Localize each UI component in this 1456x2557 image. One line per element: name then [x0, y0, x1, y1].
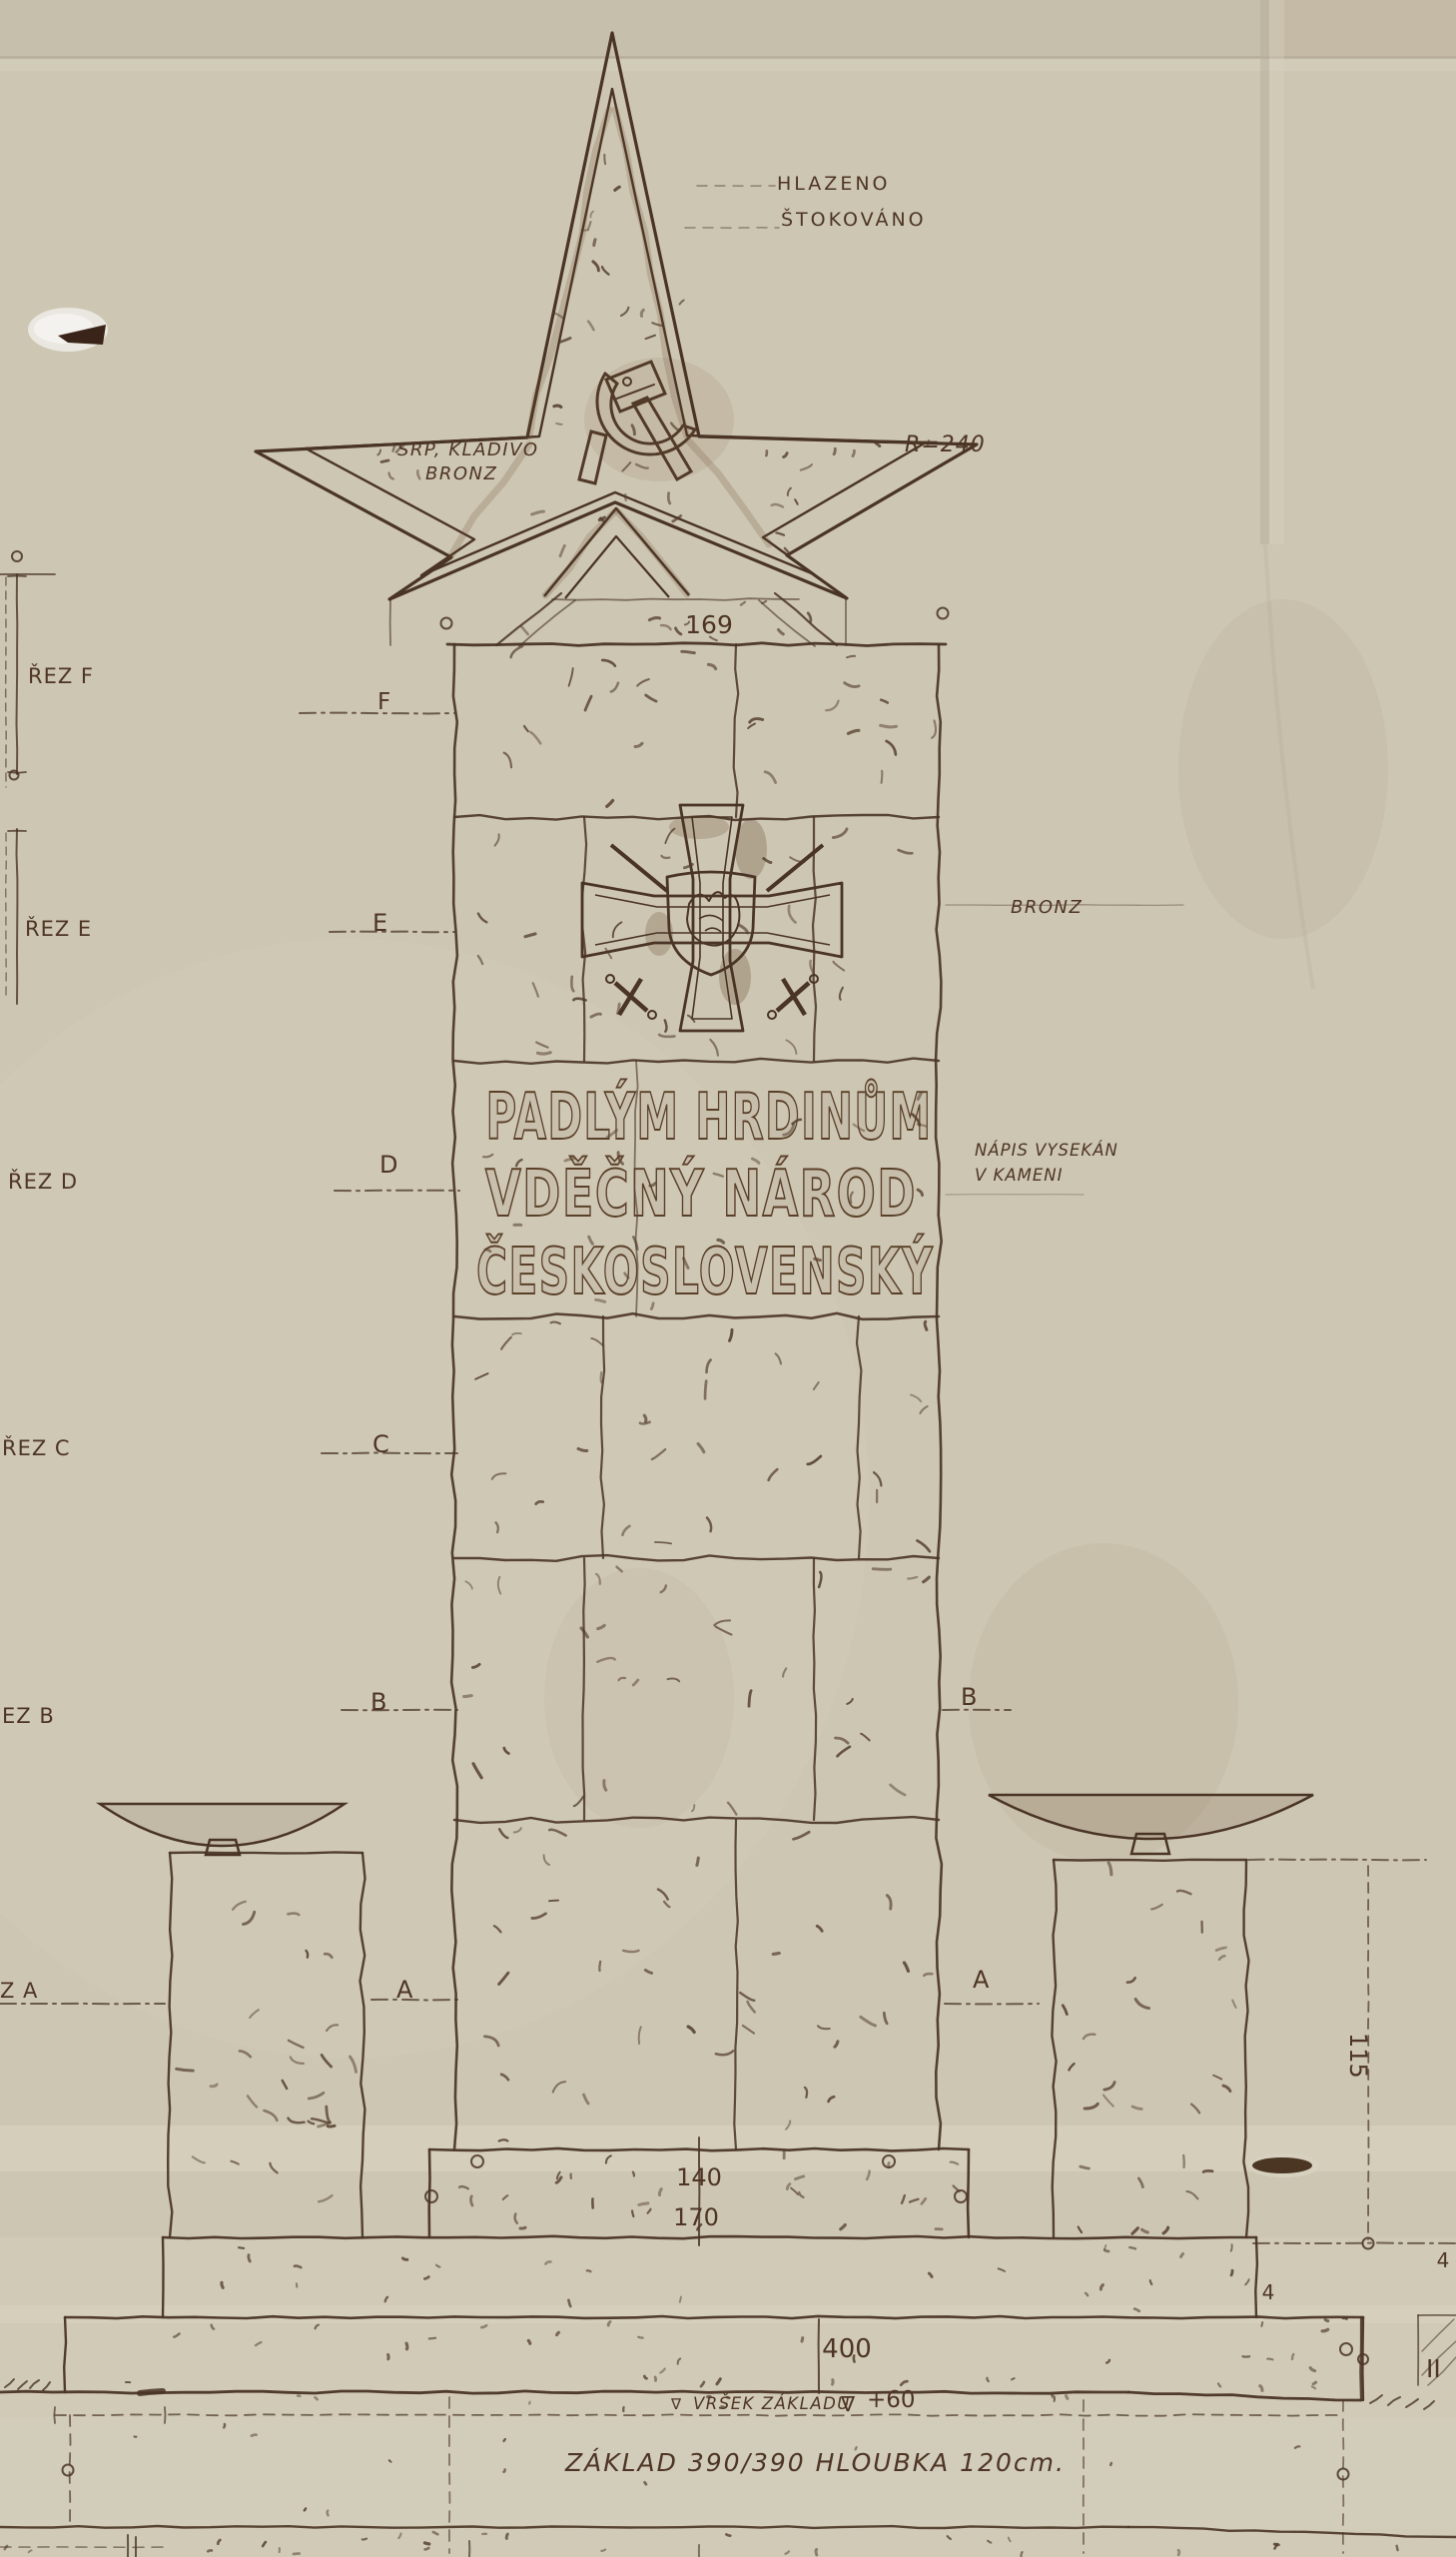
masonry-joint — [734, 644, 739, 817]
texture-stroke — [222, 2282, 223, 2287]
pier-top — [170, 1852, 363, 1853]
texture-stroke — [835, 2042, 838, 2047]
texture-stroke — [665, 829, 674, 844]
survey-circle — [441, 618, 452, 629]
star-shading — [451, 444, 529, 555]
section-line — [330, 932, 454, 933]
texture-stroke — [1322, 2329, 1328, 2331]
texture-stroke — [887, 1896, 891, 1910]
texture-stroke — [662, 856, 670, 858]
texture-stroke — [633, 2172, 634, 2176]
texture-stroke — [328, 2511, 329, 2516]
texture-stroke — [520, 2227, 525, 2228]
texture-stroke — [881, 700, 888, 703]
survey-circle — [425, 2190, 437, 2202]
texture-stroke — [847, 656, 855, 657]
texture-stroke — [538, 1053, 551, 1054]
texture-stroke — [252, 2435, 257, 2436]
texture-stroke — [920, 1406, 927, 1413]
texture-stroke — [240, 2051, 251, 2057]
texture-stroke — [1181, 2253, 1183, 2256]
texture-stroke — [611, 683, 618, 692]
texture-stroke — [889, 2162, 890, 2167]
texture-stroke — [697, 1858, 698, 1865]
texture-stroke — [741, 602, 745, 605]
texture-stroke — [1213, 2076, 1221, 2080]
texture-stroke — [1231, 2244, 1232, 2251]
texture-stroke — [588, 322, 593, 331]
material-note-line1: SRP, KLADIVO — [397, 439, 539, 460]
texture-stroke — [646, 695, 656, 701]
texture-stroke — [910, 2199, 919, 2202]
material-note-line2: BRONZ — [425, 463, 497, 484]
texture-stroke — [593, 262, 599, 271]
texture-stroke — [1063, 2006, 1067, 2015]
pier-edge — [1243, 1860, 1248, 2237]
texture-stroke — [381, 460, 388, 462]
texture-stroke — [841, 2225, 846, 2229]
texture-stroke — [726, 2534, 730, 2535]
texture-stroke — [716, 2051, 733, 2055]
texture-stroke — [1261, 2322, 1262, 2326]
texture-stroke — [571, 977, 573, 991]
tick — [8, 576, 26, 577]
texture-stroke — [805, 2088, 807, 2098]
texture-stroke — [560, 545, 564, 556]
texture-stroke — [924, 1974, 932, 1976]
margin-line — [17, 574, 18, 774]
texture-stroke — [1203, 2170, 1212, 2171]
texture-stroke — [530, 732, 540, 743]
section-line — [371, 2000, 457, 2001]
dim-140: 140 — [676, 2163, 722, 2191]
texture-stroke — [402, 2258, 407, 2259]
texture-stroke — [1343, 2318, 1346, 2319]
pedestal-slant — [519, 600, 575, 646]
texture-stroke — [743, 2026, 754, 2034]
star-shading — [545, 511, 615, 595]
texture-stroke — [289, 2119, 305, 2124]
texture-stroke — [283, 2081, 288, 2089]
texture-stroke — [738, 925, 747, 933]
texture-stroke — [908, 1577, 917, 1579]
texture-stroke — [1325, 2319, 1328, 2320]
texture-stroke — [1183, 2155, 1184, 2167]
dim-115: 115 — [1344, 2033, 1372, 2079]
texture-stroke — [556, 424, 561, 425]
texture-stroke — [649, 617, 659, 619]
texture-stroke — [918, 1190, 922, 1195]
texture-stroke — [829, 2097, 835, 2102]
texture-stroke — [902, 2195, 905, 2203]
texture-stroke — [834, 448, 835, 453]
texture-stroke — [504, 2439, 505, 2441]
texture-stroke — [599, 1962, 600, 1971]
texture-stroke — [560, 338, 570, 342]
texture-stroke — [748, 2002, 755, 2013]
plinth-edge — [968, 2149, 969, 2237]
texture-stroke — [406, 2343, 407, 2349]
texture-stroke — [208, 2550, 212, 2551]
texture-stroke — [1081, 2166, 1089, 2168]
section-marker-a-right: A — [973, 1966, 990, 1994]
texture-stroke — [789, 906, 796, 923]
survey-circle — [12, 551, 22, 561]
texture-stroke — [1104, 2083, 1114, 2091]
texture-stroke — [553, 2082, 566, 2092]
texture-stroke — [327, 2107, 331, 2123]
texture-stroke — [668, 493, 670, 503]
section-label-rez-f: ŘEZ F — [28, 663, 94, 688]
texture-stroke — [584, 2095, 589, 2104]
monument-elevation-drawing: HLAZENO ŠTOKOVÁNO SRP, KLADIVO BRONZ R=2… — [0, 0, 1456, 2557]
texture-stroke — [590, 212, 593, 218]
texture-stroke — [899, 850, 913, 853]
texture-stroke — [786, 1040, 796, 1054]
texture-stroke — [515, 2214, 517, 2223]
texture-stroke — [1022, 2552, 1023, 2557]
texture-stroke — [528, 2340, 530, 2343]
margin-line — [17, 829, 18, 1004]
texture-stroke — [1135, 2000, 1148, 2009]
radius-dimension: R=240 — [905, 432, 986, 457]
texture-stroke — [1132, 2107, 1141, 2109]
texture-stroke — [363, 2539, 366, 2540]
texture-stroke — [1219, 1956, 1224, 1960]
ground-level-symbol-1: ∇ — [670, 2395, 682, 2413]
texture-stroke — [602, 267, 609, 275]
texture-stroke — [840, 988, 843, 1000]
texture-stroke — [766, 450, 767, 455]
section-marker-d: D — [379, 1151, 397, 1179]
texture-stroke — [1127, 1978, 1135, 1982]
section-marker-b-right: B — [961, 1683, 977, 1711]
section-label-rez-a: Z A — [0, 1979, 38, 2003]
texture-stroke — [1055, 2399, 1056, 2401]
texture-stroke — [1292, 2354, 1293, 2359]
texture-stroke — [501, 2075, 508, 2080]
texture-stroke — [639, 2203, 648, 2205]
texture-stroke — [776, 533, 784, 535]
inscription-note-line1: NÁPIS VYSEKÁN — [975, 1141, 1118, 1160]
texture-stroke — [818, 2026, 830, 2029]
texture-stroke — [826, 701, 838, 711]
texture-stroke — [319, 2195, 332, 2201]
texture-stroke — [710, 1040, 718, 1056]
texture-stroke — [639, 2027, 641, 2044]
texture-stroke — [637, 679, 649, 686]
texture-stroke — [521, 626, 528, 634]
section-marker-c: C — [372, 1430, 389, 1458]
texture-stroke — [845, 683, 859, 687]
foundation-note: ZÁKLAD 390/390 HLOUBKA 120cm. — [564, 2448, 1066, 2477]
bronz-note: BRONZ — [1011, 897, 1083, 918]
texture-stroke — [787, 2184, 790, 2189]
texture-stroke — [799, 2192, 803, 2197]
texture-stroke — [478, 914, 486, 923]
texture-stroke — [762, 601, 766, 603]
texture-stroke — [784, 453, 788, 457]
texture-stroke — [638, 2337, 642, 2338]
texture-stroke — [925, 1321, 927, 1329]
texture-stroke — [954, 2186, 960, 2192]
texture-stroke — [1163, 2227, 1168, 2233]
texture-stroke — [594, 240, 595, 246]
texture-stroke — [1132, 2228, 1138, 2234]
ink-blot — [140, 2391, 163, 2393]
texture-stroke — [499, 2139, 508, 2140]
texture-stroke — [765, 772, 776, 783]
texture-stroke — [503, 2195, 508, 2199]
pier-top — [1054, 1860, 1246, 1861]
texture-stroke — [1084, 2035, 1095, 2039]
section-label-rez-e: ŘEZ E — [25, 916, 92, 941]
texture-stroke — [873, 1569, 891, 1570]
dim-4-right: 4 — [1437, 2248, 1450, 2272]
texture-stroke — [1232, 2000, 1235, 2008]
texture-stroke — [601, 1372, 602, 1382]
survey-circle — [938, 608, 949, 619]
texture-stroke — [211, 2085, 217, 2087]
detail-mark-ii: II — [1426, 2354, 1441, 2383]
texture-stroke — [1108, 1863, 1111, 1875]
texture-stroke — [659, 2189, 661, 2195]
pedestal-slant — [775, 593, 837, 645]
texture-stroke — [621, 308, 628, 316]
texture-stroke — [665, 1020, 667, 1031]
texture-stroke — [861, 1734, 870, 1741]
texture-stroke — [613, 922, 622, 937]
pier-edge — [1052, 1860, 1056, 2237]
texture-stroke — [849, 730, 859, 733]
texture-stroke — [817, 1926, 822, 1931]
texture-stroke — [876, 443, 880, 446]
margin-dashed — [6, 577, 7, 787]
texture-stroke — [676, 628, 681, 634]
texture-stroke — [623, 1951, 638, 1952]
texture-stroke — [425, 2548, 429, 2549]
foundation-level: +60 — [867, 2387, 916, 2413]
finish-note-line2: ŠTOKOVÁNO — [781, 207, 927, 231]
texture-stroke — [464, 1696, 472, 1697]
texture-stroke — [644, 1415, 646, 1421]
texture-stroke — [393, 446, 395, 451]
texture-stroke — [833, 2380, 834, 2385]
texture-stroke — [224, 2424, 225, 2427]
plinth-edge — [429, 2149, 430, 2237]
texture-stroke — [316, 2397, 318, 2399]
texture-stroke — [847, 1699, 853, 1704]
texture-stroke — [305, 2508, 306, 2510]
foundation-dashed — [449, 2397, 450, 2553]
texture-stroke — [918, 1540, 930, 1551]
texture-stroke — [177, 2069, 194, 2071]
texture-stroke — [924, 1577, 930, 1582]
texture-stroke — [932, 720, 936, 737]
texture-stroke — [788, 488, 791, 495]
texture-stroke — [1186, 2191, 1197, 2198]
texture-stroke — [635, 743, 642, 746]
section-marker-e: E — [372, 909, 387, 937]
texture-stroke — [470, 2196, 472, 2205]
survey-circle — [955, 2190, 967, 2202]
texture-stroke — [288, 1914, 299, 1915]
texture-stroke — [604, 155, 605, 164]
section-marker-b-left: B — [370, 1688, 386, 1716]
step-edge — [1360, 2317, 1361, 2400]
pedestal-slant — [759, 600, 815, 646]
texture-stroke — [1142, 2229, 1148, 2232]
texture-stroke — [661, 625, 670, 629]
texture-stroke — [1129, 2247, 1135, 2248]
texture-stroke — [891, 1785, 906, 1795]
texture-stroke — [309, 2093, 324, 2099]
texture-stroke — [659, 1035, 674, 1037]
texture-stroke — [264, 2111, 277, 2121]
texture-stroke — [495, 834, 499, 845]
section-marker-a-left: A — [396, 1976, 413, 2004]
texture-stroke — [750, 719, 763, 723]
shaft-edge — [936, 644, 942, 2149]
foundation-bottom — [0, 2526, 1128, 2528]
texture-stroke — [557, 2332, 559, 2334]
texture-stroke — [748, 724, 755, 729]
texture-stroke — [504, 2469, 505, 2472]
texture-stroke — [867, 2171, 870, 2179]
texture-stroke — [291, 2058, 304, 2064]
texture-stroke — [249, 2255, 250, 2261]
texture-stroke — [625, 494, 626, 500]
texture-stroke — [417, 470, 419, 478]
texture-stroke — [588, 222, 591, 229]
texture-stroke — [573, 999, 585, 1001]
texture-stroke — [884, 2013, 887, 2024]
texture-stroke — [429, 2338, 435, 2339]
texture-stroke — [459, 2186, 468, 2188]
texture-stroke — [1151, 1905, 1162, 1910]
texture-stroke — [607, 801, 613, 807]
texture-stroke — [680, 301, 684, 305]
texture-stroke — [377, 449, 380, 454]
texture-stroke — [794, 1832, 810, 1839]
texture-stroke — [549, 1901, 558, 1902]
texture-stroke — [861, 2017, 876, 2026]
dim-170: 170 — [673, 2203, 719, 2231]
texture-stroke — [1267, 2359, 1272, 2360]
step-edge — [163, 2237, 164, 2317]
texture-stroke — [795, 499, 798, 504]
texture-stroke — [1069, 2064, 1074, 2070]
texture-stroke — [802, 2338, 803, 2341]
texture-stroke — [309, 2122, 315, 2125]
texture-stroke — [646, 336, 656, 339]
margin-dashed — [6, 833, 7, 999]
texture-stroke — [506, 2534, 507, 2538]
section-label-rez-c: ŘEZ C — [2, 1435, 71, 1460]
pedestal-top — [552, 598, 799, 600]
texture-stroke — [1085, 2104, 1097, 2109]
texture-stroke — [424, 2543, 428, 2544]
texture-stroke — [1397, 2546, 1398, 2550]
section-label-rez-d: ŘEZ D — [8, 1169, 78, 1194]
texture-stroke — [511, 646, 523, 657]
texture-stroke — [833, 829, 847, 838]
texture-stroke — [773, 1953, 779, 1954]
texture-stroke — [1231, 2270, 1232, 2275]
texture-stroke — [836, 1738, 849, 1743]
texture-stroke — [239, 2247, 244, 2248]
texture-stroke — [602, 660, 615, 666]
texture-stroke — [389, 473, 393, 479]
step-edge — [1362, 2317, 1363, 2400]
tick — [165, 2407, 166, 2423]
texture-stroke — [1223, 2086, 1230, 2091]
texture-stroke — [708, 664, 715, 668]
texture-stroke — [645, 2482, 646, 2484]
texture-stroke — [587, 2270, 591, 2271]
texture-stroke — [1104, 2250, 1108, 2251]
texture-stroke — [484, 2037, 498, 2046]
texture-stroke — [680, 2297, 681, 2302]
ground-line — [0, 2391, 1128, 2393]
inscription-line3: ČESKOSLOVENSKÝ — [476, 1234, 934, 1309]
texture-stroke — [904, 1963, 908, 1971]
texture-stroke — [1313, 2382, 1316, 2384]
texture-stroke — [1216, 1948, 1225, 1951]
texture-stroke — [791, 2188, 798, 2195]
texture-stroke — [328, 2126, 335, 2127]
texture-stroke — [881, 725, 897, 727]
dim-169: 169 — [685, 610, 733, 639]
texture-stroke — [1012, 2378, 1015, 2379]
texture-stroke — [874, 1472, 881, 1485]
scanned-blueprint: HLAZENO ŠTOKOVÁNO SRP, KLADIVO BRONZ R=2… — [0, 0, 1456, 2557]
texture-stroke — [525, 934, 535, 937]
texture-stroke — [887, 741, 896, 755]
texture-stroke — [1053, 2394, 1055, 2397]
step-edge — [64, 2317, 66, 2392]
foundation-top-note: VRŠEK ZÁKLADU — [693, 2394, 851, 2413]
pencil-shading — [451, 110, 769, 595]
texture-stroke — [529, 2402, 530, 2404]
inscription-note-line2: V KAMENI — [975, 1166, 1064, 1185]
texture-stroke — [705, 1381, 706, 1399]
dim-reference — [1248, 1860, 1426, 1861]
texture-stroke — [532, 511, 544, 514]
texture-stroke — [312, 2119, 328, 2123]
texture-stroke — [816, 2550, 817, 2555]
texture-stroke — [882, 771, 883, 783]
texture-stroke — [615, 187, 620, 190]
texture-stroke — [618, 1004, 620, 1013]
texture-stroke — [1103, 2096, 1113, 2107]
texture-stroke — [853, 450, 855, 455]
texture-stroke — [688, 2027, 694, 2033]
texture-stroke — [911, 1395, 921, 1402]
texture-stroke — [838, 1747, 850, 1756]
inscription-line1: PADLÝM HRDINŮM — [486, 1079, 933, 1155]
texture-stroke — [1178, 2550, 1179, 2555]
texture-stroke — [1110, 2463, 1111, 2465]
texture-stroke — [1067, 2396, 1068, 2399]
texture-stroke — [524, 726, 528, 731]
texture-stroke — [682, 651, 695, 652]
dim-4-left: 4 — [1262, 2280, 1275, 2304]
texture-stroke — [648, 2209, 651, 2213]
texture-stroke — [632, 2211, 633, 2217]
texture-stroke — [1079, 2227, 1082, 2233]
texture-stroke — [585, 696, 591, 710]
